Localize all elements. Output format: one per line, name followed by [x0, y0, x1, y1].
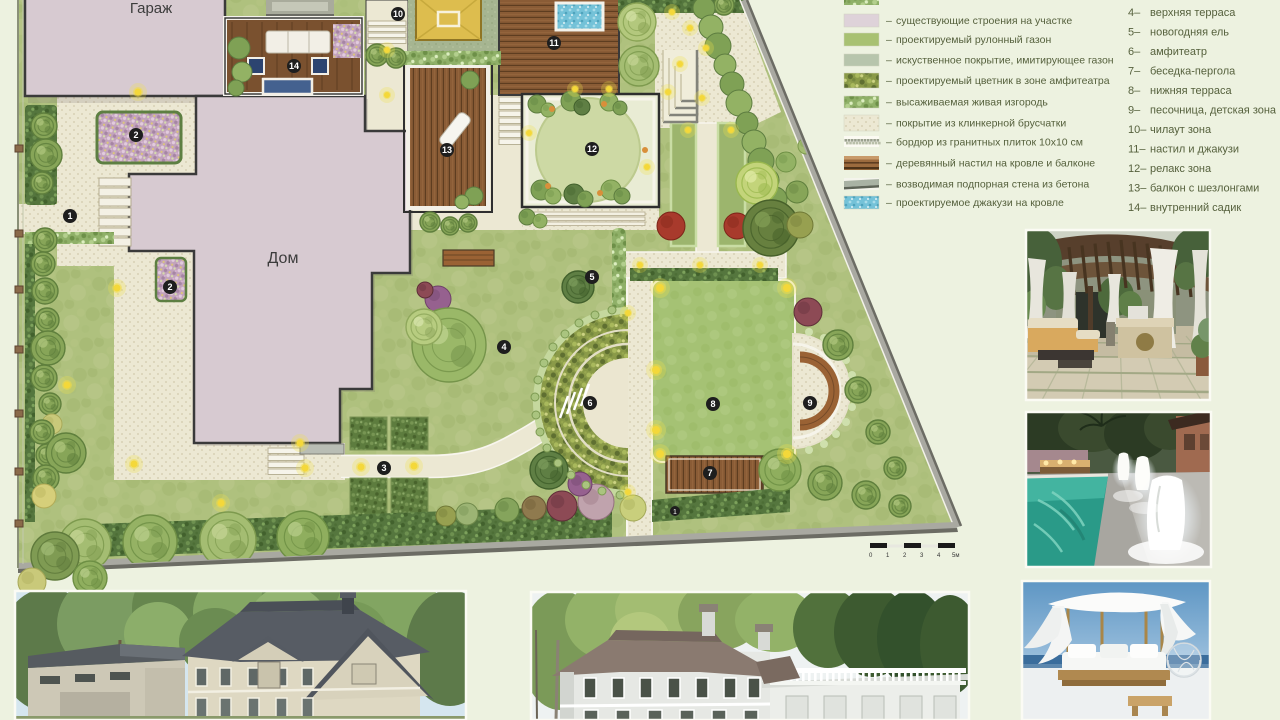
- svg-text:13: 13: [442, 145, 452, 155]
- svg-text:13–: 13–: [1128, 183, 1147, 195]
- svg-text:7: 7: [707, 468, 712, 478]
- svg-text:1: 1: [673, 509, 677, 516]
- svg-text:1: 1: [67, 211, 72, 221]
- svg-text:7–: 7–: [1128, 66, 1141, 78]
- svg-text:беседка-пергола: беседка-пергола: [1150, 66, 1236, 78]
- svg-text:покрытие из клинкерной брусчат: покрытие из клинкерной брусчатки: [896, 118, 1066, 130]
- svg-text:10: 10: [393, 9, 403, 19]
- svg-text:релакс зона: релакс зона: [1150, 163, 1212, 175]
- svg-text:6: 6: [587, 398, 592, 408]
- svg-text:балкон с шезлонгами: балкон с шезлонгами: [1150, 183, 1259, 195]
- svg-text:4: 4: [937, 553, 941, 559]
- svg-text:3: 3: [381, 463, 386, 473]
- svg-text:5м: 5м: [952, 553, 959, 559]
- svg-text:5–: 5–: [1128, 27, 1141, 39]
- svg-text:4–: 4–: [1128, 7, 1141, 19]
- svg-text:–: –: [886, 137, 892, 149]
- svg-text:чилаут зона: чилаут зона: [1150, 124, 1212, 136]
- svg-text:проектируемый цветник в зоне а: проектируемый цветник в зоне амфитеатра: [896, 75, 1110, 87]
- svg-text:–: –: [886, 197, 892, 209]
- svg-text:4: 4: [501, 342, 506, 352]
- svg-text:–: –: [886, 15, 892, 27]
- svg-text:14–: 14–: [1128, 202, 1147, 214]
- svg-text:–: –: [886, 34, 892, 46]
- svg-text:11: 11: [549, 38, 559, 48]
- svg-text:внутренний садик: внутренний садик: [1150, 202, 1241, 214]
- svg-text:высаживаемая живая изгородь: высаживаемая живая изгородь: [896, 97, 1048, 109]
- svg-text:возводимая подпорная стена из: возводимая подпорная стена из бетона: [896, 179, 1089, 191]
- svg-text:9–: 9–: [1128, 105, 1141, 117]
- svg-text:1: 1: [886, 553, 890, 559]
- svg-text:нижняя терраса: нижняя терраса: [1150, 85, 1233, 97]
- svg-text:12–: 12–: [1128, 163, 1147, 175]
- svg-text:2: 2: [133, 130, 138, 140]
- svg-text:–: –: [886, 179, 892, 191]
- svg-text:искуственное покрытие, имитиру: искуственное покрытие, имитирующее газон: [896, 55, 1114, 67]
- svg-text:9: 9: [807, 398, 812, 408]
- svg-text:10–: 10–: [1128, 124, 1147, 136]
- svg-text:Гараж: Гараж: [130, 0, 172, 17]
- svg-text:песочница, детская зона: песочница, детская зона: [1150, 105, 1277, 117]
- svg-text:–: –: [886, 75, 892, 87]
- svg-text:8: 8: [710, 399, 715, 409]
- svg-text:Дом: Дом: [268, 250, 299, 267]
- svg-text:2: 2: [167, 282, 172, 292]
- svg-text:6–: 6–: [1128, 46, 1141, 58]
- svg-text:верхняя терраса: верхняя терраса: [1150, 7, 1236, 19]
- svg-text:–: –: [886, 55, 892, 67]
- svg-text:деревянный настил на кровле и: деревянный настил на кровле и балконе: [896, 158, 1095, 170]
- svg-text:–: –: [886, 97, 892, 109]
- svg-text:проектируемое джакузи на кровл: проектируемое джакузи на кровле: [896, 197, 1064, 209]
- svg-text:существующие строения на участ: существующие строения на участке: [896, 15, 1072, 27]
- svg-text:2: 2: [903, 553, 907, 559]
- svg-text:проектируемый рулонный газон: проектируемый рулонный газон: [896, 34, 1051, 46]
- svg-text:0: 0: [869, 553, 873, 559]
- svg-text:3: 3: [920, 553, 924, 559]
- svg-text:амфитеатр: амфитеатр: [1150, 46, 1207, 58]
- svg-text:–: –: [886, 118, 892, 130]
- svg-text:8–: 8–: [1128, 85, 1141, 97]
- svg-text:14: 14: [289, 61, 299, 71]
- svg-text:бордюр из гранитных плиток 10х: бордюр из гранитных плиток 10х10 см: [896, 137, 1083, 149]
- svg-text:настил и джакузи: настил и джакузи: [1150, 144, 1239, 156]
- svg-text:12: 12: [587, 144, 597, 154]
- svg-text:11–: 11–: [1128, 144, 1146, 156]
- svg-text:–: –: [886, 158, 892, 170]
- svg-text:новогодняя ель: новогодняя ель: [1150, 27, 1229, 39]
- svg-text:5: 5: [589, 272, 594, 282]
